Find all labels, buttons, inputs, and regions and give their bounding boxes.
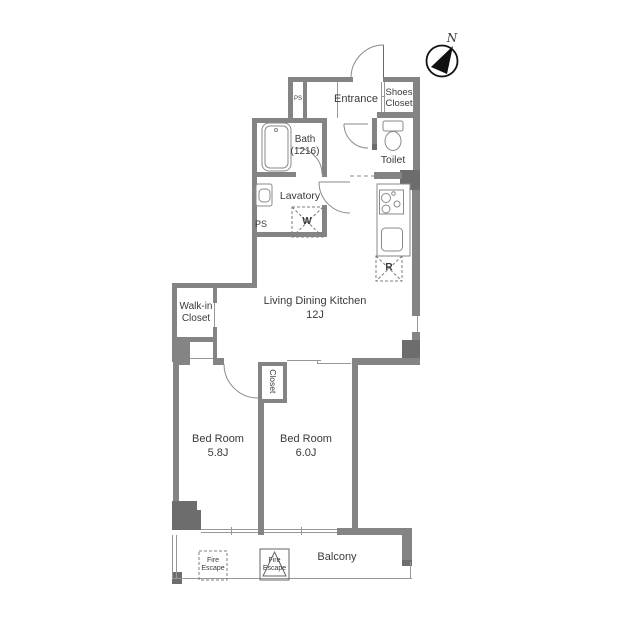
kitchen-counter xyxy=(377,184,410,256)
ldk-label: Living Dining Kitchen 12J xyxy=(243,294,387,323)
toilet-label: Toilet xyxy=(369,154,417,167)
fire-escape-label: Fire Escape xyxy=(198,557,228,574)
compass-icon xyxy=(427,46,458,77)
toilet-door-arc xyxy=(344,124,368,148)
entrance-door-arc xyxy=(351,45,384,78)
bedroom2-label: Bed Room 6.0J xyxy=(260,432,352,461)
compass-north-label: N xyxy=(444,31,460,46)
walk-in-closet-label: Walk-in Closet xyxy=(167,301,225,325)
sink-icon xyxy=(382,228,403,251)
fire-escape-hatch-label: Fire Escape xyxy=(259,557,290,574)
washer-label: W xyxy=(297,216,317,229)
balcony-label: Balcony xyxy=(295,551,379,565)
shoes-closet-label: Shoes Closet xyxy=(377,87,421,109)
pipe-shaft-label: PS xyxy=(250,219,272,230)
floor-plan: N Entrance Shoes Closet PS Bath (1216) T… xyxy=(0,0,640,640)
bedroom1-label: Bed Room 5.8J xyxy=(172,432,264,461)
toilet-icon xyxy=(383,121,403,151)
closet-label: Closet xyxy=(267,361,278,402)
pipe-shaft-top-label: PS xyxy=(289,96,307,104)
fridge-label: R xyxy=(379,262,399,275)
bath-label: Bath (1216) xyxy=(277,134,333,158)
lavatory-label: Lavatory xyxy=(263,190,337,203)
bedroom1-door-arc xyxy=(224,364,258,398)
